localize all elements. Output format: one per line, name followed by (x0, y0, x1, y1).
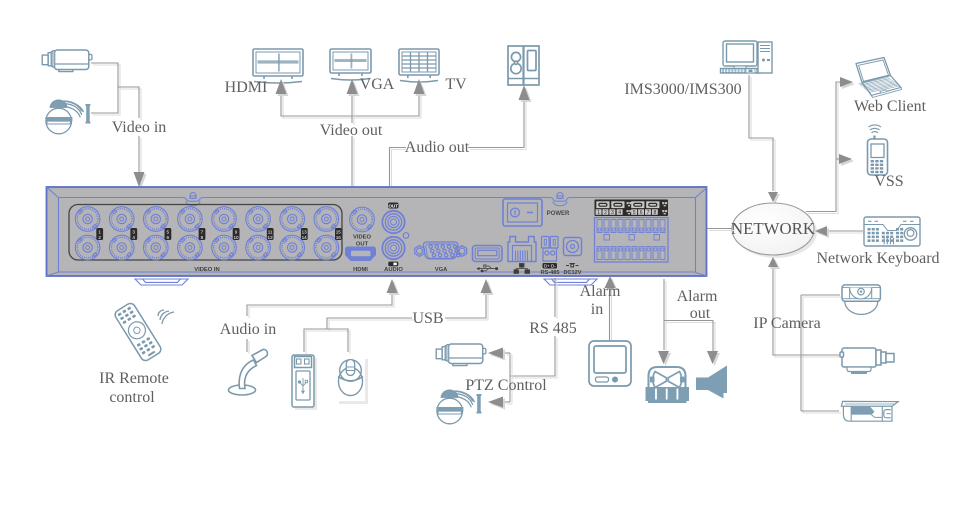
svg-text:9: 9 (235, 230, 238, 235)
svg-text:VIDEO IN: VIDEO IN (194, 267, 219, 273)
svg-text:5: 5 (167, 230, 170, 235)
svg-text:6: 6 (640, 210, 643, 216)
svg-text:10: 10 (233, 235, 239, 240)
svg-text:POWER: POWER (547, 211, 570, 217)
svg-text:D+ D-: D+ D- (544, 264, 556, 269)
svg-text:1: 1 (98, 230, 101, 235)
svg-text:RS 485: RS 485 (529, 320, 577, 337)
svg-text:14: 14 (302, 235, 308, 240)
svg-text:in: in (591, 301, 603, 318)
svg-text:AUDIO: AUDIO (384, 267, 403, 273)
svg-text:Alarm: Alarm (580, 283, 621, 300)
svg-text:VGA: VGA (360, 76, 395, 93)
svg-text:IP Camera: IP Camera (753, 315, 820, 332)
svg-text:NETWORK: NETWORK (731, 219, 815, 238)
svg-text:8: 8 (654, 210, 657, 216)
svg-text:USB: USB (412, 310, 443, 327)
svg-text:VSS: VSS (874, 173, 903, 190)
svg-text:Web Client: Web Client (854, 98, 927, 115)
svg-text:Audio out: Audio out (405, 139, 470, 156)
svg-text:16: 16 (336, 235, 342, 240)
svg-text:11: 11 (268, 230, 273, 235)
svg-text:1: 1 (597, 210, 600, 216)
svg-text:IMS3000/IMS300: IMS3000/IMS300 (624, 81, 741, 98)
svg-text:7: 7 (201, 230, 204, 235)
svg-text:IR Remote: IR Remote (99, 370, 169, 387)
svg-text:7: 7 (647, 210, 650, 216)
svg-text:Video in: Video in (112, 119, 167, 136)
svg-text:2: 2 (98, 235, 101, 240)
svg-text:VGA: VGA (435, 267, 448, 273)
svg-text:OUT: OUT (388, 203, 398, 208)
svg-text:12: 12 (268, 235, 274, 240)
svg-text:TV: TV (445, 76, 467, 93)
svg-text:Network Keyboard: Network Keyboard (816, 250, 939, 267)
svg-text:15: 15 (336, 230, 342, 235)
svg-text:out: out (690, 305, 711, 322)
svg-text:8: 8 (201, 235, 204, 240)
svg-text:Alarm: Alarm (677, 288, 718, 305)
svg-text:5: 5 (633, 210, 636, 216)
svg-text:HDMI: HDMI (225, 79, 268, 96)
svg-text:VIDEO: VIDEO (353, 235, 372, 241)
svg-text:4: 4 (618, 210, 621, 216)
svg-text:Audio in: Audio in (220, 321, 276, 338)
svg-text:Video out: Video out (320, 122, 383, 139)
svg-text:3: 3 (611, 210, 614, 216)
svg-text:2: 2 (604, 210, 607, 216)
svg-text:DC12V: DC12V (563, 270, 581, 276)
svg-text:HDMI: HDMI (353, 267, 368, 273)
svg-text:RS-485: RS-485 (541, 270, 560, 276)
svg-text:3: 3 (132, 230, 135, 235)
svg-text:4: 4 (132, 235, 135, 240)
svg-text:control: control (109, 389, 155, 406)
svg-text:PTZ Control: PTZ Control (465, 377, 547, 394)
svg-text:6: 6 (167, 235, 170, 240)
svg-text:13: 13 (302, 230, 308, 235)
